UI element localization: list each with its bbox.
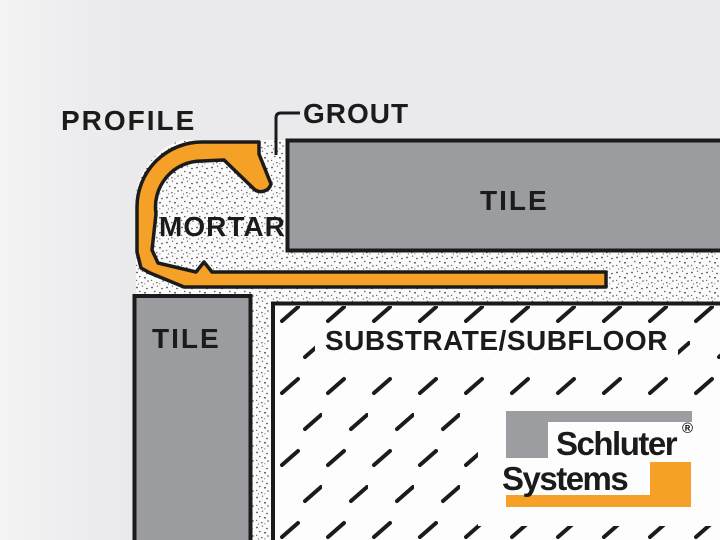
registered-trademark-icon: ® — [682, 421, 693, 436]
diagram-canvas: PROFILE GROUT MORTAR TILE TILE SUBSTRATE… — [0, 0, 720, 540]
grout-label: GROUT — [303, 100, 409, 128]
logo-text-systems: Systems — [502, 462, 627, 495]
substrate-label: SUBSTRATE/SUBFLOOR — [315, 323, 678, 359]
profile-label: PROFILE — [61, 107, 196, 135]
mortar-label: MORTAR — [159, 213, 286, 241]
tile-left-label: TILE — [152, 325, 221, 353]
schluter-systems-logo: Schluter ® Systems — [495, 405, 705, 517]
tile-top-label: TILE — [480, 187, 549, 215]
logo-text-schluter: Schluter — [556, 427, 676, 460]
logo-gray-bracket-bar — [506, 411, 692, 422]
